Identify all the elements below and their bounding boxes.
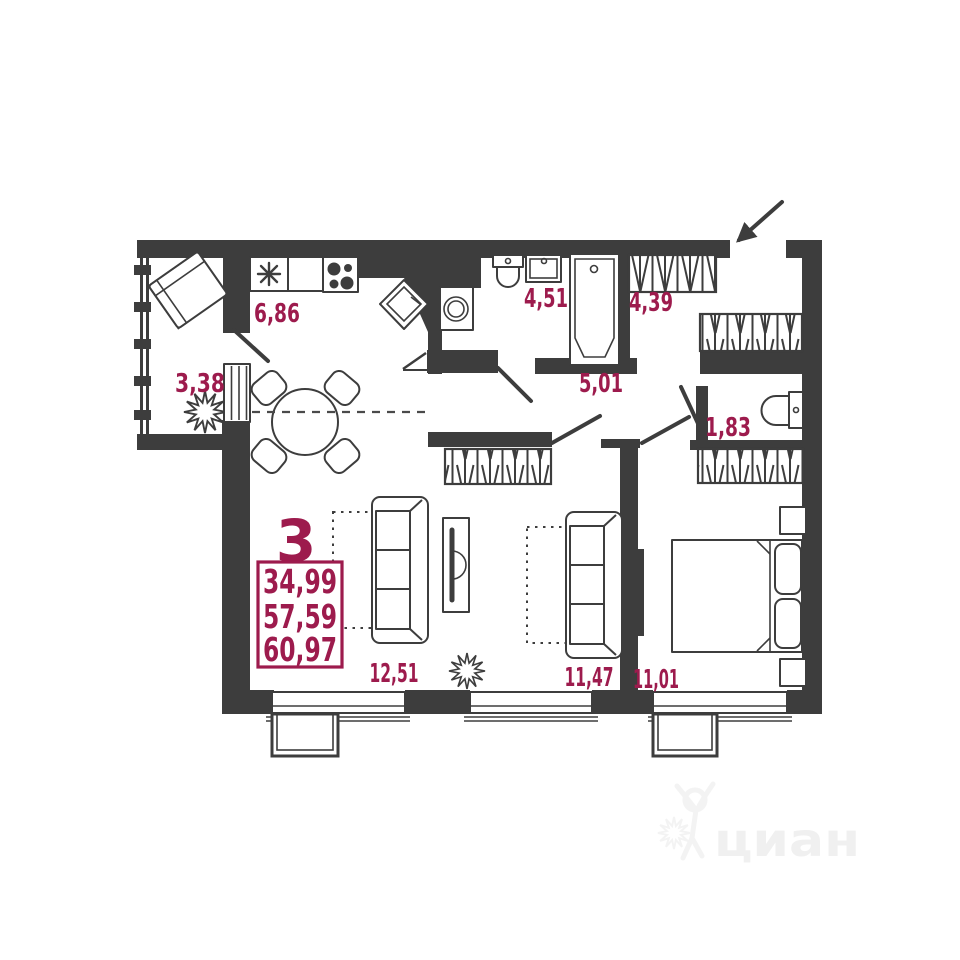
wc-top-wall [700, 352, 802, 374]
balcony-kitchen-divider [223, 240, 250, 333]
apartment-summary: 3 34,99 57,59 60,97 [258, 507, 342, 669]
bedroom2-area-label: 11,01 [633, 665, 679, 695]
hall-wardrobe-icon [629, 255, 716, 292]
bedroom1-door-leaf [552, 416, 600, 443]
bedroom1-wardrobe-icon [445, 449, 551, 484]
balcony-door-leaf [234, 330, 268, 361]
right-wall [802, 252, 822, 714]
tv-icon [636, 549, 644, 636]
pillow-icon [775, 544, 801, 594]
living-area-label: 12,51 [370, 659, 419, 689]
watermark: циан [658, 784, 860, 867]
pillow-icon [775, 599, 801, 648]
living-left-wall [222, 420, 250, 714]
counter [288, 257, 323, 291]
bedroom1-plant-icon [449, 653, 485, 689]
balcony-glazing [134, 258, 151, 434]
dining-table-icon [248, 368, 362, 476]
watermark-star-icon [658, 817, 690, 849]
bedroom1-sofa-icon [566, 512, 622, 658]
wc-area-label: 1,83 [705, 413, 751, 443]
bottom-wall-a [222, 690, 274, 714]
bath-bottom-wall-left [427, 350, 498, 373]
armchair-icon [149, 251, 228, 328]
hall-passage-leaf [403, 353, 426, 369]
sink-icon [258, 263, 280, 285]
bottom-wall-d [787, 690, 822, 714]
hall-wardrobe2-icon [700, 314, 802, 351]
wc-toilet-icon [762, 396, 790, 425]
nightstand-icon [780, 507, 806, 534]
balcony-bottom-wall [137, 434, 224, 450]
hall-t-wall [601, 439, 640, 448]
living-area-total-label: 34,99 [263, 562, 337, 601]
bathroom-door-leaf [498, 368, 531, 401]
balcony-area-label: 3,38 [175, 369, 225, 399]
kitchen-area-label: 6,86 [254, 299, 300, 329]
living-window [272, 692, 405, 713]
bedroom1-area-label: 11,47 [565, 663, 614, 693]
watermark-text: циан [714, 813, 860, 867]
windows [266, 692, 792, 756]
bathtub-icon [570, 254, 619, 365]
floor-plan: 6,86 3,38 4,51 4,39 5,01 1,83 12,51 11,4… [0, 0, 960, 960]
bedroom1-dresser-icon [443, 518, 469, 612]
bedroom2-door-leaf [642, 417, 689, 443]
bedroom2-wardrobe-icon [698, 449, 803, 483]
stove [323, 257, 358, 292]
living-sofa-icon [372, 497, 428, 643]
bedroom2-furniture [636, 507, 806, 686]
corridor-area-label: 5,01 [579, 369, 623, 399]
watermark-logo-icon [677, 784, 713, 858]
bedroom1-top-wall [428, 432, 552, 447]
floor-plan-page: 6,86 3,38 4,51 4,39 5,01 1,83 12,51 11,4… [0, 0, 960, 960]
entrance-arrow-icon [739, 202, 782, 240]
bedroom2-window [653, 692, 787, 713]
wc-fixtures [762, 392, 804, 428]
bottom-wall-b [405, 690, 470, 714]
bedroom1-window [470, 692, 592, 713]
balcony-furniture [149, 251, 228, 433]
bathroom-area-label: 4,51 [524, 284, 568, 314]
total-area-label: 60,97 [263, 630, 337, 669]
hall-area-label: 4,39 [629, 288, 673, 318]
toilet-icon [493, 255, 523, 267]
nightstand-icon [780, 659, 806, 686]
